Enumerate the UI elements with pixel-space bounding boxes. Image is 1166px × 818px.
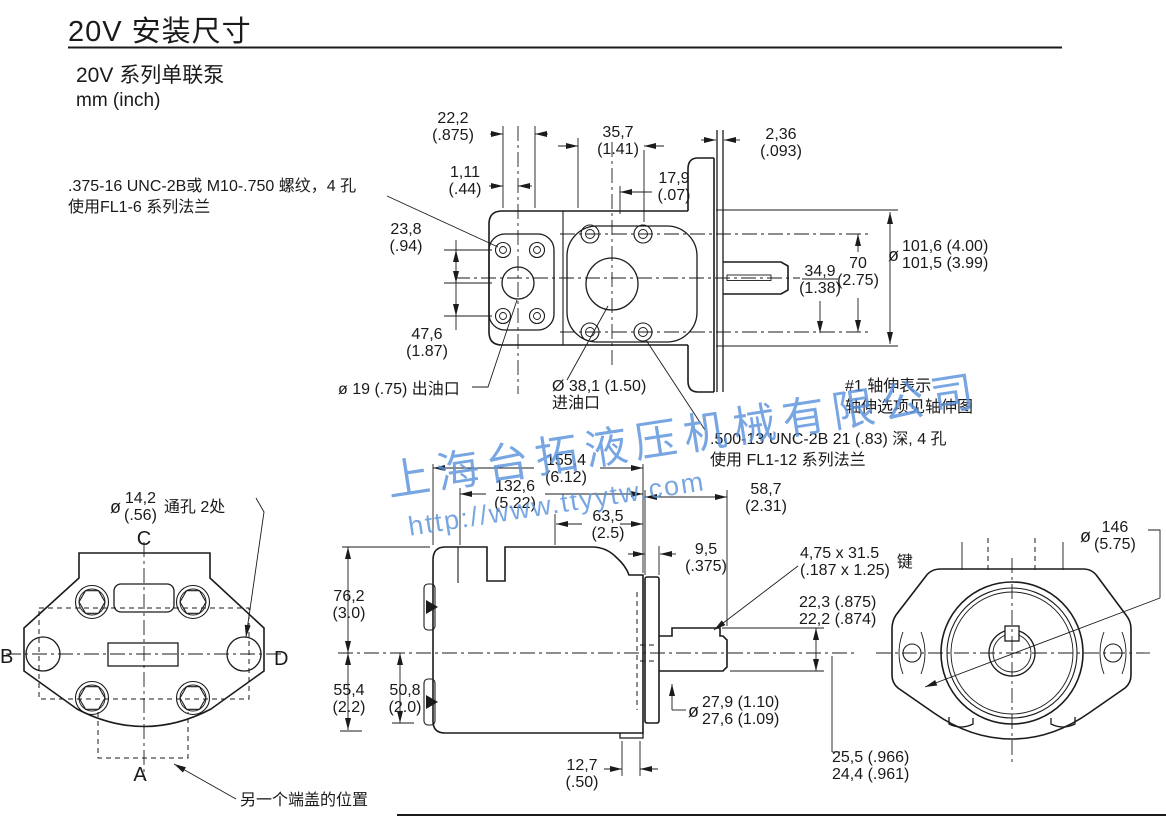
- label-inlet-port: Ø 38,1 (1.50)进油口: [552, 378, 646, 412]
- dim-1-11: 1,11(.44): [440, 164, 490, 198]
- note-shaft-extension: #1 轴伸表示 轴伸选项见轴伸图: [845, 376, 973, 418]
- dim-17-9: 17,9(.07): [646, 170, 702, 204]
- page-title: 20V 安装尺寸: [68, 8, 252, 50]
- note-shaft-line1: #1 轴伸表示: [845, 376, 973, 397]
- top-view-body: [489, 130, 788, 392]
- note-top-thread-line2: 使用FL1-6 系列法兰: [68, 197, 356, 218]
- dim-12-7: 12,7(.50): [558, 757, 606, 791]
- diameter-symbol: ø: [1080, 528, 1091, 545]
- dim-35-7: 35,7(1.41): [584, 124, 652, 158]
- units-label: mm (inch): [76, 90, 160, 112]
- dim-34-9: 34,9(1.38): [788, 263, 852, 297]
- dim-23-8: 23,8(.94): [380, 221, 432, 255]
- dim-27-9: ø 27,9 (1.10)27,6 (1.09): [688, 694, 779, 728]
- dim-132-6: 132,6(5.22): [488, 478, 542, 512]
- dim-146: ø 146(5.75): [1080, 519, 1136, 553]
- note-shaft-line2: 轴伸选项见轴伸图: [845, 397, 973, 418]
- shaft-end-view: [876, 530, 1160, 766]
- drawing-page: 上海台拓液压机械有限公司 http://www.ttyytw.com 20V 安…: [0, 0, 1166, 818]
- dim-58-7: 58,7(2.31): [740, 481, 792, 515]
- dim-key: 4,75 x 31.5(.187 x 1.25) 键: [800, 545, 913, 579]
- dim-50-8: 50,8(2.0): [382, 682, 428, 716]
- label-outlet-port: ø 19 (.75) 出油口: [338, 379, 460, 400]
- note-alt-cover: 另一个端盖的位置: [240, 790, 368, 811]
- dim-47-6: 47,6(1.87): [396, 326, 458, 360]
- through-hole-note: 通孔 2处: [164, 499, 225, 516]
- view-label-c: C: [130, 528, 158, 551]
- note-bottom-thread-line2: 使用 FL1-12 系列法兰: [710, 450, 947, 471]
- note-bottom-thread-line1: .500-13 UNC-2B 21 (.83) 深, 4 孔: [710, 429, 947, 450]
- diameter-symbol: ø: [688, 703, 699, 720]
- diameter-symbol: ø: [110, 499, 121, 516]
- dim-101-6: ø 101,6 (4.00)101,5 (3.99): [888, 238, 988, 272]
- dim-63-5: 63,5(2.5): [584, 508, 632, 542]
- dim-14-2: ø 14,2(.56) 通孔 2处: [110, 490, 225, 524]
- dim-25-5: 25,5 (.966)24,4 (.961): [832, 749, 909, 783]
- view-label-d: D: [274, 648, 288, 671]
- note-top-thread: .375-16 UNC-2B或 M10-.750 螺纹，4 孔 使用FL1-6 …: [68, 176, 356, 218]
- dim-2-36: 2,36(.093): [750, 126, 812, 160]
- dim-9-5: 9,5(.375): [680, 541, 732, 575]
- dim-155-4: 155,4(6.12): [538, 452, 594, 486]
- dim-22-2: 22,2(.875): [424, 110, 482, 144]
- view-label-b: B: [0, 646, 13, 669]
- dim-76-2: 76,2(3.0): [326, 588, 372, 622]
- note-top-thread-line1: .375-16 UNC-2B或 M10-.750 螺纹，4 孔: [68, 176, 356, 197]
- series-subtitle: 20V 系列单联泵: [76, 59, 224, 89]
- dim-55-4: 55,4(2.2): [326, 682, 372, 716]
- view-label-a: A: [126, 764, 154, 787]
- diameter-symbol: ø: [888, 247, 899, 264]
- dim-22-3: 22,3 (.875)22,2 (.874): [799, 594, 876, 628]
- note-bottom-thread: .500-13 UNC-2B 21 (.83) 深, 4 孔 使用 FL1-12…: [710, 429, 947, 471]
- key-note: 键: [897, 554, 913, 571]
